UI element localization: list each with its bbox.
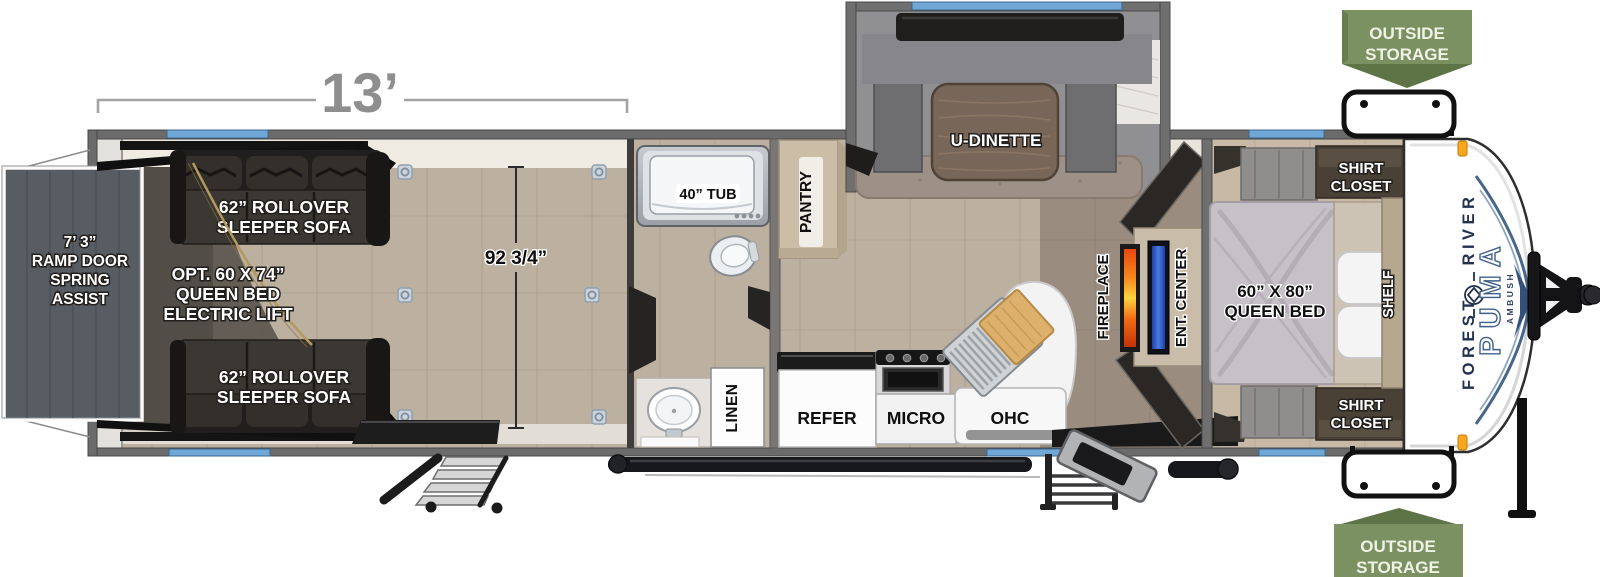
svg-text:OPT. 60 X 74”: OPT. 60 X 74” xyxy=(172,264,285,284)
svg-text:62” ROLLOVER: 62” ROLLOVER xyxy=(219,197,350,217)
svg-text:PANTRY: PANTRY xyxy=(798,170,815,233)
svg-text:SHIRT: SHIRT xyxy=(1339,160,1384,177)
svg-text:AMBUSH: AMBUSH xyxy=(1505,272,1515,324)
svg-text:92 3/4”: 92 3/4” xyxy=(485,248,547,269)
svg-text:U-DINETTE: U-DINETTE xyxy=(951,131,1042,150)
svg-text:FIREPLACE: FIREPLACE xyxy=(1095,254,1112,339)
svg-text:CLOSET: CLOSET xyxy=(1331,178,1392,195)
svg-text:PUMA: PUMA xyxy=(1475,238,1507,355)
svg-text:ASSIST: ASSIST xyxy=(52,291,109,308)
svg-text:OHC: OHC xyxy=(991,408,1030,428)
svg-text:QUEEN BED: QUEEN BED xyxy=(1224,302,1325,321)
svg-text:OUTSIDE: OUTSIDE xyxy=(1369,24,1445,43)
svg-text:REFER: REFER xyxy=(797,408,857,428)
svg-text:SHELF: SHELF xyxy=(1381,270,1397,318)
svg-text:13’: 13’ xyxy=(321,61,399,124)
svg-text:60” X 80”: 60” X 80” xyxy=(1237,282,1313,301)
svg-text:SLEEPER SOFA: SLEEPER SOFA xyxy=(217,387,352,407)
svg-text:LINEN: LINEN xyxy=(724,384,741,433)
svg-text:7’ 3”: 7’ 3” xyxy=(64,234,97,251)
svg-text:OUTSIDE: OUTSIDE xyxy=(1360,537,1436,556)
svg-text:QUEEN BED: QUEEN BED xyxy=(176,284,280,304)
svg-text:STORAGE: STORAGE xyxy=(1365,45,1449,64)
svg-text:ENT. CENTER: ENT. CENTER xyxy=(1173,249,1190,348)
svg-text:SHIRT: SHIRT xyxy=(1339,397,1384,414)
svg-text:RAMP DOOR: RAMP DOOR xyxy=(32,253,128,270)
svg-text:CLOSET: CLOSET xyxy=(1331,415,1392,432)
svg-text:STORAGE: STORAGE xyxy=(1356,558,1440,577)
svg-text:62” ROLLOVER: 62” ROLLOVER xyxy=(219,367,350,387)
svg-text:ELECTRIC LIFT: ELECTRIC LIFT xyxy=(163,304,293,324)
svg-text:SPRING: SPRING xyxy=(50,272,109,289)
svg-text:MICRO: MICRO xyxy=(887,408,945,428)
svg-text:40” TUB: 40” TUB xyxy=(679,187,736,203)
svg-text:SLEEPER SOFA: SLEEPER SOFA xyxy=(217,217,352,237)
